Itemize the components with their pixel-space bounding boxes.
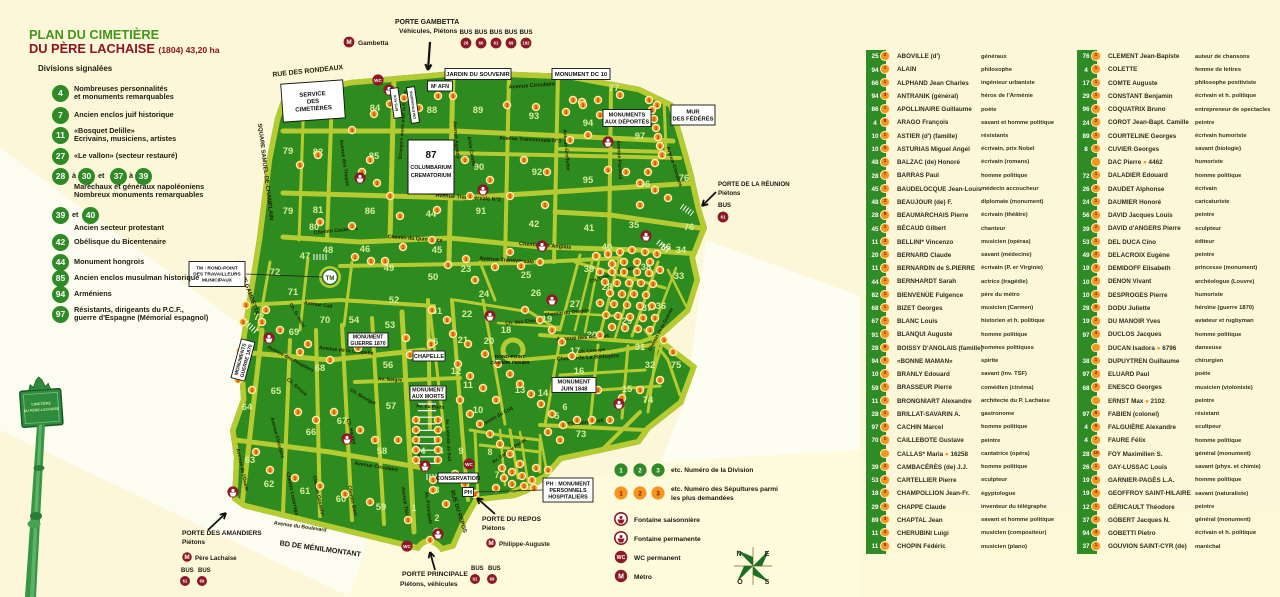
svg-text:Piétons: Piétons xyxy=(182,539,206,546)
svg-text:27: 27 xyxy=(570,298,580,309)
svg-text:BUS: BUS xyxy=(198,568,211,574)
svg-text:31: 31 xyxy=(635,341,645,352)
svg-text:BUS: BUS xyxy=(519,29,532,36)
svg-text:CONSERVATION: CONSERVATION xyxy=(436,476,480,482)
svg-text:BUS: BUS xyxy=(718,202,731,209)
svg-text:58: 58 xyxy=(377,445,387,456)
svg-text:20: 20 xyxy=(484,335,494,346)
svg-text:46: 46 xyxy=(360,243,370,254)
svg-text:M: M xyxy=(618,574,624,581)
svg-text:42: 42 xyxy=(529,218,539,229)
svg-text:50: 50 xyxy=(428,271,438,282)
svg-text:S: S xyxy=(765,579,770,586)
svg-text:1: 1 xyxy=(619,490,623,497)
svg-text:2: 2 xyxy=(638,490,642,497)
svg-text:DES: DES xyxy=(307,99,320,106)
svg-text:BUS: BUS xyxy=(471,566,484,572)
svg-text:74: 74 xyxy=(643,394,654,405)
svg-text:66: 66 xyxy=(306,426,316,437)
svg-text:PH: PH xyxy=(464,490,472,496)
svg-text:23: 23 xyxy=(461,263,471,274)
svg-text:M: M xyxy=(488,540,493,547)
svg-text:26: 26 xyxy=(464,41,469,46)
svg-text:BUS: BUS xyxy=(474,29,487,36)
svg-text:PORTE DU REPOS: PORTE DU REPOS xyxy=(482,516,542,523)
svg-text:WC: WC xyxy=(465,462,473,467)
svg-text:M: M xyxy=(346,39,351,46)
svg-text:61: 61 xyxy=(300,485,310,496)
svg-text:DES FÉDÉRÉS: DES FÉDÉRÉS xyxy=(673,115,714,123)
svg-text:81: 81 xyxy=(313,204,323,215)
svg-text:WC: WC xyxy=(403,544,411,549)
svg-text:89: 89 xyxy=(473,104,483,115)
svg-text:15: 15 xyxy=(622,383,632,394)
svg-text:1: 1 xyxy=(619,467,623,474)
svg-text:35: 35 xyxy=(629,219,639,230)
svg-text:94: 94 xyxy=(583,117,594,128)
svg-text:BUS: BUS xyxy=(459,29,472,36)
svg-text:PORTE PRINCIPALE: PORTE PRINCIPALE xyxy=(402,571,468,578)
svg-text:14: 14 xyxy=(538,387,549,398)
svg-text:102: 102 xyxy=(523,41,531,46)
svg-text:Piétons, véhicules: Piétons, véhicules xyxy=(400,581,458,588)
svg-text:BUS: BUS xyxy=(489,29,502,36)
svg-text:59: 59 xyxy=(376,501,386,512)
svg-text:61: 61 xyxy=(183,579,188,584)
svg-text:54: 54 xyxy=(349,314,360,325)
svg-text:etc. Numéro des Sépultures par: etc. Numéro des Sépultures parmi xyxy=(671,486,778,493)
svg-text:71: 71 xyxy=(288,286,298,297)
svg-text:32: 32 xyxy=(645,359,655,370)
svg-text:MONUMENT DC 10: MONUMENT DC 10 xyxy=(555,72,607,78)
svg-text:26: 26 xyxy=(531,287,541,298)
svg-text:2: 2 xyxy=(638,467,642,474)
svg-text:6: 6 xyxy=(563,402,568,412)
svg-text:MONUMENT: MONUMENT xyxy=(412,388,444,394)
svg-text:Gambetta: Gambetta xyxy=(358,40,389,47)
svg-text:PH : MONUMENT: PH : MONUMENT xyxy=(546,481,591,487)
svg-text:79: 79 xyxy=(283,145,293,156)
svg-text:Métro: Métro xyxy=(634,574,652,581)
svg-text:Père Lachaise: Père Lachaise xyxy=(195,555,237,562)
svg-text:1: 1 xyxy=(412,503,417,513)
svg-text:BUS: BUS xyxy=(504,29,517,36)
svg-text:COLUMBARIUM: COLUMBARIUM xyxy=(410,165,452,171)
svg-text:ROND-POINT: ROND-POINT xyxy=(495,354,525,360)
svg-text:61: 61 xyxy=(494,41,499,46)
svg-text:CHAPELLE: CHAPELLE xyxy=(414,354,444,360)
svg-text:11: 11 xyxy=(463,379,473,390)
svg-text:BUS: BUS xyxy=(181,568,194,574)
svg-text:GUERRE 1870: GUERRE 1870 xyxy=(350,341,385,347)
svg-text:57: 57 xyxy=(386,400,396,411)
svg-text:Piétons: Piétons xyxy=(718,190,741,197)
svg-text:61: 61 xyxy=(473,577,478,582)
svg-text:24: 24 xyxy=(479,288,490,299)
svg-text:73: 73 xyxy=(576,428,586,439)
svg-text:WC permanent: WC permanent xyxy=(634,555,681,562)
svg-text:PERSONNELS: PERSONNELS xyxy=(549,488,587,494)
svg-text:56: 56 xyxy=(383,359,393,370)
svg-text:3: 3 xyxy=(656,467,660,474)
svg-text:les plus demandées: les plus demandées xyxy=(671,495,734,502)
svg-text:41: 41 xyxy=(584,222,594,233)
svg-text:48: 48 xyxy=(323,244,333,255)
svg-text:95: 95 xyxy=(583,174,593,185)
svg-text:36: 36 xyxy=(656,300,666,311)
svg-text:52: 52 xyxy=(389,294,399,305)
svg-text:64: 64 xyxy=(242,401,253,412)
svg-text:Véhicules, Piétons: Véhicules, Piétons xyxy=(399,28,458,35)
svg-text:10: 10 xyxy=(473,404,483,415)
svg-text:69: 69 xyxy=(289,326,299,337)
svg-text:PORTE DES AMANDIERS: PORTE DES AMANDIERS xyxy=(182,530,262,537)
svg-text:3: 3 xyxy=(656,490,660,497)
svg-text:PORTE GAMBETTA: PORTE GAMBETTA xyxy=(395,19,459,26)
svg-text:79: 79 xyxy=(283,205,293,216)
svg-text:69: 69 xyxy=(509,41,514,46)
svg-text:E: E xyxy=(765,551,770,558)
svg-text:7: 7 xyxy=(495,470,500,480)
svg-text:AUX MORTS: AUX MORTS xyxy=(412,394,445,400)
svg-text:8: 8 xyxy=(488,447,493,457)
svg-text:Philippe-Auguste: Philippe-Auguste xyxy=(499,541,550,548)
svg-text:69: 69 xyxy=(490,577,495,582)
svg-text:CASIMIR PERIER: CASIMIR PERIER xyxy=(490,360,530,366)
svg-text:JUIN 1848: JUIN 1848 xyxy=(561,386,588,392)
svg-text:68: 68 xyxy=(315,362,325,373)
svg-text:34: 34 xyxy=(676,244,687,255)
svg-text:97: 97 xyxy=(635,130,645,141)
svg-text:DES TRAVAILLEURS: DES TRAVAILLEURS xyxy=(193,272,241,278)
svg-text:92: 92 xyxy=(532,166,542,177)
svg-text:88: 88 xyxy=(427,104,437,115)
svg-text:Av. Neigre: Av. Neigre xyxy=(378,376,403,383)
svg-text:M: M xyxy=(184,554,189,561)
svg-text:76: 76 xyxy=(684,221,694,232)
svg-text:MONUMENT: MONUMENT xyxy=(558,380,592,386)
svg-text:MONUMENT: MONUMENT xyxy=(353,335,384,341)
svg-text:65: 65 xyxy=(271,385,281,396)
svg-text:16: 16 xyxy=(574,365,584,376)
svg-text:Piétons: Piétons xyxy=(482,525,506,532)
svg-text:70: 70 xyxy=(320,314,330,325)
svg-text:62: 62 xyxy=(264,478,274,489)
svg-text:WC: WC xyxy=(617,555,626,561)
svg-text:91: 91 xyxy=(476,205,486,216)
svg-text:TM : ROND-POINT: TM : ROND-POINT xyxy=(196,266,238,272)
svg-text:25: 25 xyxy=(521,269,531,280)
svg-text:45: 45 xyxy=(432,244,442,255)
svg-text:WC: WC xyxy=(374,78,382,83)
svg-text:Fontaine saisonnière: Fontaine saisonnière xyxy=(634,517,700,524)
svg-text:MUR: MUR xyxy=(686,110,700,116)
svg-text:MUNICIPAUX: MUNICIPAUX xyxy=(202,278,233,284)
svg-text:33: 33 xyxy=(674,270,684,281)
svg-text:60: 60 xyxy=(479,41,484,46)
svg-text:Fontaine permanente: Fontaine permanente xyxy=(634,536,701,543)
svg-text:HOSPITALIERS: HOSPITALIERS xyxy=(548,495,588,501)
svg-text:2: 2 xyxy=(435,513,440,523)
svg-text:BUS: BUS xyxy=(488,566,501,572)
svg-text:39: 39 xyxy=(584,263,594,274)
svg-text:PORTE DE LA RÉUNION: PORTE DE LA RÉUNION xyxy=(718,180,790,188)
svg-text:47: 47 xyxy=(300,250,310,261)
svg-text:75: 75 xyxy=(671,359,681,370)
svg-text:TM: TM xyxy=(326,276,335,282)
svg-text:9: 9 xyxy=(459,446,464,456)
svg-text:etc. Numéro de la Division: etc. Numéro de la Division xyxy=(671,467,753,474)
svg-text:53: 53 xyxy=(385,319,395,330)
svg-text:22: 22 xyxy=(462,308,472,319)
svg-text:JARDIN DU SOUVENIR: JARDIN DU SOUVENIR xyxy=(446,72,510,78)
svg-text:Mᵗ AFN: Mᵗ AFN xyxy=(431,84,449,90)
svg-text:63: 63 xyxy=(245,454,255,465)
svg-text:93: 93 xyxy=(529,110,539,121)
svg-text:AUX DÉPORTÉS: AUX DÉPORTÉS xyxy=(605,117,649,125)
svg-text:CREMATORIUM: CREMATORIUM xyxy=(411,173,452,179)
svg-text:61: 61 xyxy=(721,215,726,220)
svg-text:MONUMENTS: MONUMENTS xyxy=(609,113,646,119)
svg-text:87: 87 xyxy=(425,150,437,161)
svg-text:69: 69 xyxy=(200,579,205,584)
svg-text:86: 86 xyxy=(365,205,375,216)
svg-text:O: O xyxy=(737,579,743,586)
svg-text:N: N xyxy=(736,551,741,558)
svg-text:77: 77 xyxy=(609,82,619,93)
